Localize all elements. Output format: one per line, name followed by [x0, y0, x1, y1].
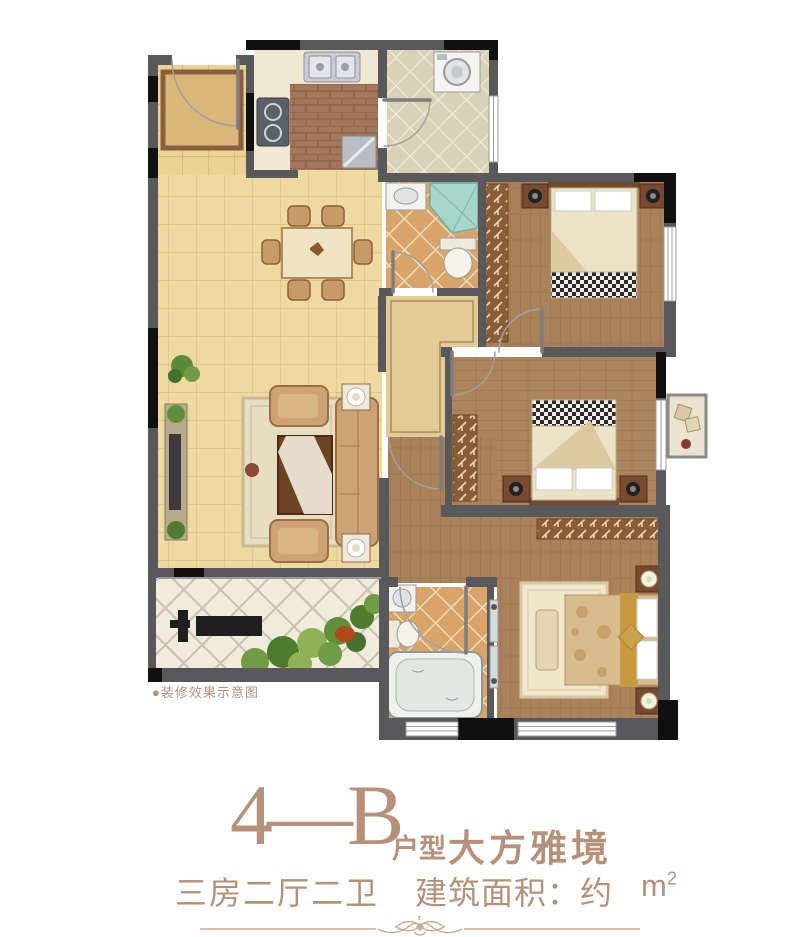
pillow — [576, 468, 612, 490]
bed2-throw — [532, 400, 616, 426]
plant-icon — [167, 405, 185, 423]
bathroom2-window — [406, 722, 458, 736]
bathtub-inner — [396, 659, 474, 711]
ornamental-divider — [200, 916, 640, 937]
room-count: 三房二厅二卫 — [175, 868, 379, 914]
area-unit: m2 — [641, 868, 677, 904]
pillow — [555, 191, 591, 211]
bath2-toilet — [388, 620, 419, 648]
sofa-main — [336, 398, 378, 546]
pillow — [637, 641, 657, 679]
unit-code: 4—B — [230, 772, 398, 858]
plant-icon — [167, 521, 185, 539]
bed1-throw — [551, 272, 637, 298]
unit-name: 大方雅境 — [448, 818, 612, 872]
bedroom2-wardrobe — [453, 415, 477, 501]
master-window — [518, 722, 616, 736]
side-table-lamp-top — [342, 384, 370, 410]
bedroom-bench — [536, 610, 558, 670]
unit-type-label: 户型 — [392, 827, 446, 866]
garden-bench — [196, 616, 262, 636]
bedroom2-window — [656, 400, 666, 470]
entry-furniture — [163, 72, 241, 148]
floorplan-page: ●装修效果示意图 4—B 户型 大方雅境 三房二厅二卫 建筑面积：约 m2 — [0, 0, 800, 937]
unit-base: m — [641, 868, 667, 903]
area-label: 建筑面积：约 — [415, 868, 613, 914]
red-shrub — [335, 626, 355, 642]
flower-pot — [245, 463, 259, 477]
entry-rug — [163, 72, 241, 148]
pillow — [637, 599, 657, 637]
render-disclaimer: ●装修效果示意图 — [152, 682, 259, 701]
laundry-window — [489, 96, 498, 162]
stove — [257, 98, 289, 146]
pillow — [595, 191, 631, 211]
laundry-furniture — [434, 52, 480, 92]
pillow — [536, 468, 572, 490]
side-table-lamp-bottom — [342, 534, 370, 562]
master-wardrobe — [537, 519, 662, 539]
bedroom1-window — [664, 227, 676, 301]
bed1-headboard — [548, 181, 640, 188]
bedroom1-wardrobe — [486, 184, 508, 342]
floor-plan — [0, 0, 800, 760]
unit-sup: 2 — [667, 869, 677, 889]
tv — [169, 434, 181, 510]
